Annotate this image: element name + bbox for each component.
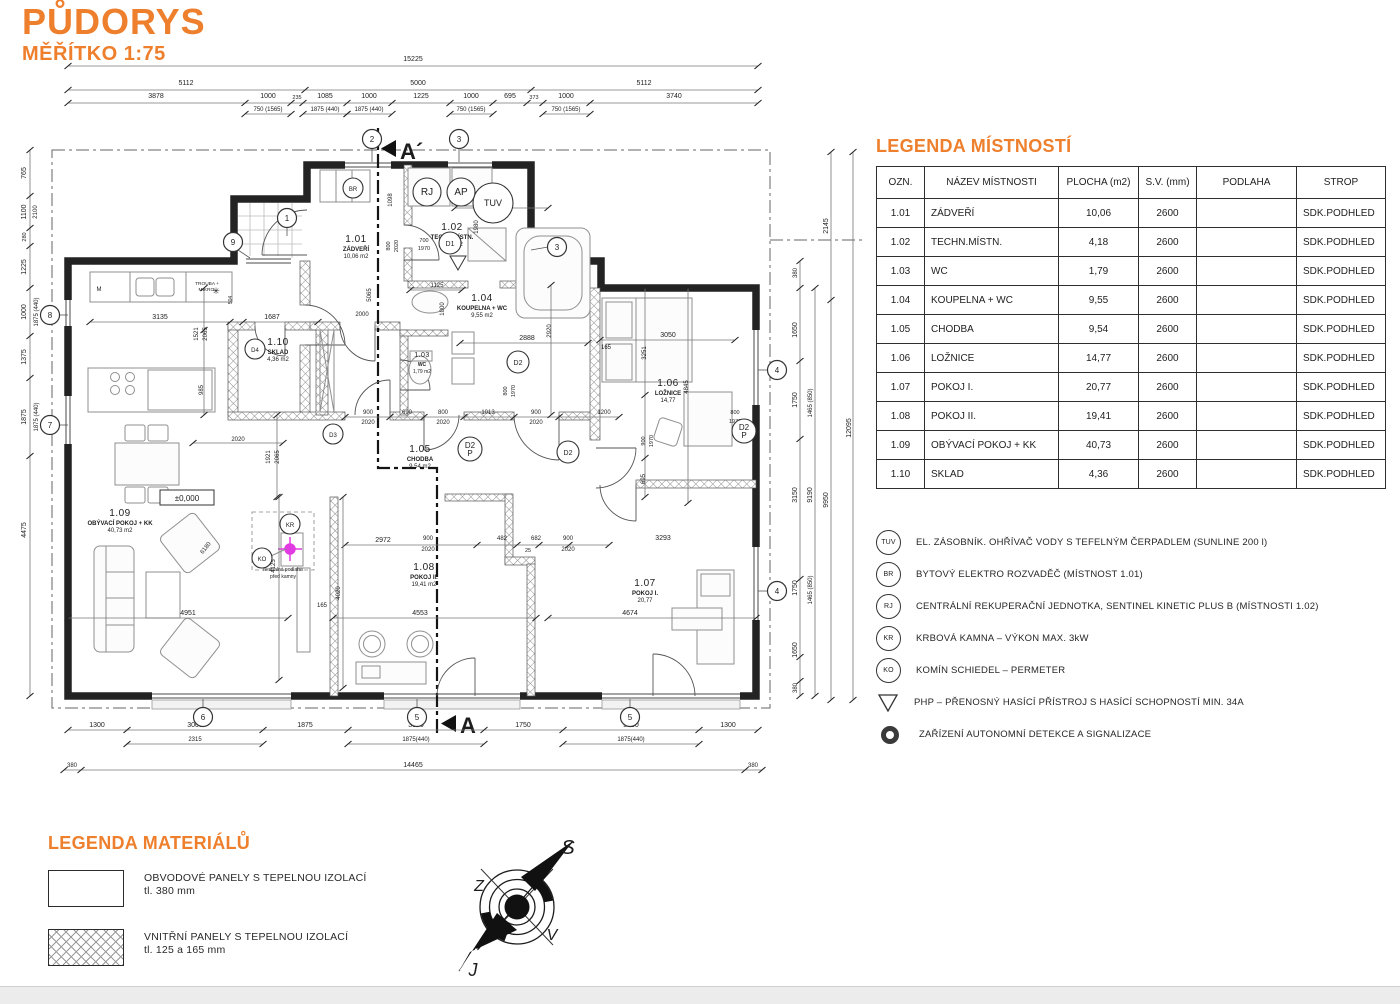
dim-label: 1750	[792, 580, 799, 596]
dim-label: 1970	[511, 385, 517, 397]
dim-label: 695	[641, 473, 647, 484]
dim-label: 1000	[558, 93, 574, 100]
grid-bubble: 5	[621, 708, 640, 727]
dim-label: 800	[730, 410, 739, 416]
table-cell: 1.05	[877, 315, 925, 344]
dim-label: 1465 (850)	[808, 575, 814, 604]
rooms-legend-heading: LEGENDA MÍSTNOSTÍ	[876, 136, 1390, 157]
table-cell: SDK.PODHLED	[1297, 373, 1386, 402]
table-row: 1.01ZÁDVEŘÍ10,062600SDK.PODHLED	[877, 199, 1386, 228]
dim-label: 700	[419, 238, 428, 244]
room-name: OBÝVACÍ POKOJ + KK	[87, 519, 153, 527]
dim-label: 5112	[178, 80, 193, 87]
dim-label: 1000	[21, 304, 28, 320]
section-arrow-bottom	[441, 715, 456, 732]
dim-label: 1375	[21, 349, 28, 365]
dim-label: 4475	[21, 522, 28, 538]
table-row: 1.07POKOJ I.20,772600SDK.PODHLED	[877, 373, 1386, 402]
d1-symbol: D1	[439, 232, 461, 254]
room-name: ZÁDVEŘÍ	[343, 245, 370, 253]
table-cell: 10,06	[1059, 199, 1139, 228]
room-number: 1.05	[409, 444, 430, 455]
col-sv: S.V. (mm)	[1139, 167, 1197, 199]
dim-label: 25	[525, 548, 531, 554]
page-title: PŮDORYS	[22, 2, 206, 42]
d3-symbol: D3	[323, 424, 343, 444]
room-name: KOUPELNA + WC	[457, 306, 508, 312]
material-label: VNITŘNÍ PANELY S TEPELNOU IZOLACÍ	[144, 931, 348, 944]
dim-label: 9950	[823, 492, 830, 508]
dim-label: 1875 (440)	[34, 402, 40, 431]
dim-label: 1000	[361, 93, 377, 100]
table-cell: 1.09	[877, 431, 925, 460]
room-number: 1.03	[414, 352, 430, 359]
grid-bubble-number: 2	[370, 135, 375, 144]
dim-label: 373	[529, 95, 538, 101]
legend-item-text: CENTRÁLNÍ REKUPERAČNÍ JEDNOTKA, SENTINEL…	[916, 601, 1319, 612]
dim-label: 3251	[642, 346, 648, 360]
dim-label: 5112	[636, 80, 651, 87]
legend-item: ZAŘÍZENÍ AUTONOMNÍ DETEKCE A SIGNALIZACE	[876, 723, 1400, 746]
table-cell	[1197, 373, 1297, 402]
room-label: 1.01ZÁDVEŘÍ10,06 m2	[343, 234, 370, 260]
grid-bubble: 3	[450, 130, 469, 149]
dim-label: 900	[363, 410, 374, 416]
device-label: P	[741, 431, 746, 440]
table-cell: SDK.PODHLED	[1297, 344, 1386, 373]
dim-label: 165	[317, 603, 328, 609]
dim-label: 695	[504, 93, 516, 100]
grid-bubble: 4	[768, 582, 787, 601]
room-label: 1.10SKLAD4,36 m2	[267, 337, 289, 363]
table-header-row: OZN. NÁZEV MÍSTNOSTI PLOCHA (m2) S.V. (m…	[877, 167, 1386, 199]
table-cell: 1.08	[877, 402, 925, 431]
legend-item-text: KOMÍN SCHIEDEL – PERMETER	[916, 665, 1065, 676]
compass-rose: S Z V J	[430, 815, 615, 1000]
table-cell: POKOJ II.	[925, 402, 1059, 431]
legend-item: BRBYTOVÝ ELEKTRO ROZVADĚČ (MÍSTNOST 1.01…	[876, 563, 1400, 586]
table-cell: 1.04	[877, 286, 925, 315]
room-number: 1.02	[441, 222, 462, 233]
dim-label: 1875(440)	[402, 737, 429, 743]
dim-label: 12095	[846, 418, 853, 438]
table-cell: 2600	[1139, 402, 1197, 431]
table-cell: 14,77	[1059, 344, 1139, 373]
dim-label: 2100	[33, 205, 39, 219]
dim-label: 4020	[336, 586, 342, 600]
dim-label: 5000	[410, 80, 426, 87]
table-cell: 9,54	[1059, 315, 1139, 344]
table-row: 1.02TECHN.MÍSTN.4,182600SDK.PODHLED	[877, 228, 1386, 257]
room-name: LOŽNICE	[655, 389, 681, 397]
legend-item-text: EL. ZÁSOBNÍK. OHŘÍVAČ VODY S TEFELNÝM ČE…	[916, 537, 1267, 548]
table-cell: SDK.PODHLED	[1297, 286, 1386, 315]
table-cell: SKLAD	[925, 460, 1059, 489]
dim-label: 1875(440)	[617, 737, 644, 743]
dim-label: 2065	[275, 450, 281, 464]
dim-label: 2888	[519, 335, 535, 342]
dim-label: 2972	[375, 537, 391, 544]
table-cell: SDK.PODHLED	[1297, 431, 1386, 460]
device-label: BR	[349, 187, 358, 193]
device-label: KO	[258, 557, 267, 563]
dim-label: 2020	[436, 420, 450, 426]
dim-label: 900	[641, 436, 647, 445]
table-cell: 1.03	[877, 257, 925, 286]
device-label: D3	[329, 433, 337, 439]
col-plocha: PLOCHA (m2)	[1059, 167, 1139, 199]
compass-north-label: S	[561, 837, 575, 859]
tuv-symbol: TUV	[473, 183, 513, 223]
dim-label: 3135	[152, 314, 168, 321]
dim-label: 800	[438, 410, 449, 416]
dim-label: 1970	[649, 435, 655, 447]
dim-label: 1921	[266, 450, 272, 464]
table-row: 1.09OBÝVACÍ POKOJ + KK40,732600SDK.PODHL…	[877, 431, 1386, 460]
dim-label: 14465	[403, 762, 423, 769]
dim-label: nespalná podlaha	[263, 567, 303, 573]
legend-item-text: BYTOVÝ ELEKTRO ROZVADĚČ (MÍSTNOST 1.01)	[916, 569, 1143, 580]
dim-label: 3050	[660, 332, 676, 339]
dim-label: 2020	[361, 420, 375, 426]
table-cell: 1.10	[877, 460, 925, 489]
room-name: POKOJ II.	[410, 575, 438, 581]
dim-label: 165	[601, 345, 612, 351]
dim-label: 900	[563, 536, 574, 542]
device-label: TUV	[484, 198, 502, 208]
floor-plan: A´ A	[0, 40, 880, 810]
dim-label: 280	[22, 232, 28, 241]
room-number: 1.07	[634, 578, 655, 589]
table-cell: 2600	[1139, 228, 1197, 257]
table-cell: 4,36	[1059, 460, 1139, 489]
dim-label: 1000	[260, 93, 276, 100]
table-cell: 2600	[1139, 431, 1197, 460]
device-label: P	[467, 449, 472, 458]
dim-label: 765	[21, 167, 28, 179]
ko-circle-icon: KO	[876, 658, 901, 683]
triangle-icon	[876, 691, 899, 714]
dim-label: 1300	[89, 722, 105, 729]
device-label: D1	[446, 241, 455, 248]
table-cell	[1197, 315, 1297, 344]
table-row: 1.03WC1,792600SDK.PODHLED	[877, 257, 1386, 286]
table-cell: SDK.PODHLED	[1297, 228, 1386, 257]
dim-label: 3740	[666, 93, 682, 100]
legend-item: KRKRBOVÁ KAMNA – VÝKON MAX. 3kW	[876, 627, 1400, 650]
dim-label: 1098	[388, 193, 394, 207]
table-cell: LOŽNICE	[925, 344, 1059, 373]
dim-label: 2000	[355, 312, 369, 318]
grid-bubble: 6	[194, 708, 213, 727]
table-cell: 2600	[1139, 373, 1197, 402]
dim-label: 4674	[622, 610, 638, 617]
ap-symbol: AP	[447, 178, 475, 206]
dim-label: 1465 (850)	[808, 388, 814, 417]
dim-label: 2020	[394, 240, 400, 252]
symbols-legend-list: TUVEL. ZÁSOBNÍK. OHŘÍVAČ VODY S TEFELNÝM…	[876, 531, 1400, 746]
section-label-top: A´	[400, 139, 423, 164]
dim-label: 1875	[297, 722, 313, 729]
rooms-table-body: 1.01ZÁDVEŘÍ10,062600SDK.PODHLED1.02TECHN…	[877, 199, 1386, 489]
table-row: 1.10SKLAD4,362600SDK.PODHLED	[877, 460, 1386, 489]
dim-label: 2020	[231, 437, 245, 443]
grid-bubble-number: 1	[285, 214, 290, 223]
table-cell: 2600	[1139, 460, 1197, 489]
table-cell	[1197, 228, 1297, 257]
grid-bubble-number: 4	[775, 587, 780, 596]
dim-label: 1200	[597, 410, 611, 416]
dim-label: 380	[748, 763, 759, 769]
table-row: 1.05CHODBA9,542600SDK.PODHLED	[877, 315, 1386, 344]
dim-label: 985	[199, 384, 205, 395]
legend-item: RJCENTRÁLNÍ REKUPERAČNÍ JEDNOTKA, SENTIN…	[876, 595, 1400, 618]
table-cell: 4,18	[1059, 228, 1139, 257]
grid-bubble-number: 6	[201, 713, 206, 722]
section-label-bottom: A	[460, 713, 476, 738]
tuv-circle-icon: TUV	[876, 530, 901, 555]
table-cell: POKOJ I.	[925, 373, 1059, 402]
dim-label: 690	[402, 410, 413, 416]
window-bottom-edge	[0, 986, 1400, 1004]
d2-symbol: D2	[507, 351, 529, 373]
dim-label: 235	[292, 95, 301, 101]
dim-label: 1100	[21, 204, 28, 219]
device-label: KR	[286, 523, 295, 529]
dim-label: 380	[793, 267, 799, 278]
dim-label: 504	[228, 296, 234, 305]
table-cell	[1197, 402, 1297, 431]
table-cell	[1197, 431, 1297, 460]
rj-circle-icon: RJ	[876, 594, 901, 619]
table-row: 1.06LOŽNICE14,772600SDK.PODHLED	[877, 344, 1386, 373]
table-cell: CHODBA	[925, 315, 1059, 344]
d4-symbol: D4	[245, 339, 265, 359]
grid-bubble: 4	[768, 361, 787, 380]
kr-symbol: KR	[280, 514, 300, 534]
table-cell	[1197, 460, 1297, 489]
dim-label: M	[97, 287, 102, 293]
room-area: 20,77	[637, 598, 653, 604]
room-area: 1,79 m2	[413, 369, 431, 375]
col-podlaha: PODLAHA	[1197, 167, 1297, 199]
dim-label: 1225	[413, 93, 429, 100]
table-cell: SDK.PODHLED	[1297, 460, 1386, 489]
rj-symbol: RJ	[413, 178, 441, 206]
legend-item-text: ZAŘÍZENÍ AUTONOMNÍ DETEKCE A SIGNALIZACE	[919, 729, 1151, 740]
dim-label: 1650	[792, 322, 799, 338]
room-name: WC	[418, 362, 427, 368]
table-row: 1.08POKOJ II.19,412600SDK.PODHLED	[877, 402, 1386, 431]
dim-label: 1125	[431, 283, 445, 289]
room-name: SKLAD	[268, 350, 289, 356]
table-cell: 2600	[1139, 286, 1197, 315]
device-label: RJ	[421, 187, 433, 198]
section-arrow-top	[381, 140, 396, 157]
dim-label: před kamny	[270, 574, 297, 580]
dim-label: 1650	[792, 642, 799, 658]
grid-bubble-number: 9	[231, 238, 236, 247]
table-cell: SDK.PODHLED	[1297, 257, 1386, 286]
dim-label: 1085	[317, 93, 333, 100]
grid-bubble: 9	[224, 233, 243, 252]
d2-symbol: D2	[557, 441, 579, 463]
room-area: 40,73 m2	[107, 528, 133, 534]
d2-p-symbol: D2P	[732, 419, 756, 443]
table-cell: 1,79	[1059, 257, 1139, 286]
dim-label: 4845	[684, 380, 690, 394]
room-area: 19,41 m2	[411, 582, 437, 588]
dim-label: 1225	[21, 259, 28, 275]
dim-label: ±0,000	[175, 494, 200, 503]
legend-item: PHP – PŘENOSNÝ HASÍCÍ PŘÍSTROJ S HASÍCÍ …	[876, 691, 1400, 714]
dim-label: 1687	[264, 314, 280, 321]
room-area: 4,36 m2	[267, 357, 289, 363]
table-cell: OBÝVACÍ POKOJ + KK	[925, 431, 1059, 460]
compass-south-label: J	[468, 960, 479, 980]
compass-east-label: V	[547, 927, 559, 944]
dim-label: 800	[386, 241, 392, 250]
table-cell: 19,41	[1059, 402, 1139, 431]
room-area: 9,55 m2	[471, 313, 493, 319]
dim-label: 900	[423, 536, 434, 542]
room-area: 14,77	[660, 398, 676, 404]
dim-label: 3150	[792, 487, 799, 503]
col-ozn: OZN.	[877, 167, 925, 199]
dim-label: 5065	[367, 288, 373, 302]
table-cell: 2600	[1139, 344, 1197, 373]
dim-label: 1750	[792, 392, 799, 408]
rooms-table: OZN. NÁZEV MÍSTNOSTI PLOCHA (m2) S.V. (m…	[876, 166, 1386, 489]
col-strop: STROP	[1297, 167, 1386, 199]
dim-label: 2020	[561, 547, 575, 553]
table-cell	[1197, 286, 1297, 315]
dim-label: ✳	[212, 286, 220, 296]
dim-label: 2145	[823, 218, 830, 234]
dim-label: 1000	[440, 302, 446, 316]
table-cell: 1.06	[877, 344, 925, 373]
dim-label: 1875 (440)	[310, 107, 339, 113]
dim-label: 750 (1565)	[551, 107, 580, 113]
dim-label: 2315	[188, 737, 202, 743]
grid-bubble: 5	[408, 708, 427, 727]
room-number: 1.08	[413, 562, 434, 573]
compass-hub	[505, 895, 530, 920]
exterior-panel-swatch	[48, 870, 124, 907]
dim-label: 1875	[21, 409, 28, 425]
room-number: 1.10	[267, 337, 288, 348]
grid-bubble: 3	[548, 238, 567, 257]
dim-label: 1300	[720, 722, 736, 729]
grid-bubble-number: 8	[48, 311, 53, 320]
table-cell: 2600	[1139, 199, 1197, 228]
room-area: 10,06 m2	[343, 254, 369, 260]
dim-label: 1000	[463, 93, 479, 100]
table-cell: KOUPELNA + WC	[925, 286, 1059, 315]
room-number: 1.06	[657, 378, 678, 389]
table-cell	[1197, 344, 1297, 373]
rooms-legend: LEGENDA MÍSTNOSTÍ OZN. NÁZEV MÍSTNOSTI P…	[876, 136, 1390, 489]
room-name: POKOJ I.	[632, 591, 658, 597]
table-cell: TECHN.MÍSTN.	[925, 228, 1059, 257]
room-label: 1.05CHODBA9,54 m2	[407, 444, 434, 470]
table-cell: WC	[925, 257, 1059, 286]
dim-label: 3293	[655, 535, 671, 542]
legend-item-text: PHP – PŘENOSNÝ HASÍCÍ PŘÍSTROJ S HASÍCÍ …	[914, 697, 1244, 708]
table-cell: 20,77	[1059, 373, 1139, 402]
dim-label: 750 (1565)	[456, 107, 485, 113]
grid-bubble-number: 3	[555, 243, 560, 252]
dim-label: 750 (1565)	[253, 107, 282, 113]
table-row: 1.04KOUPELNA + WC9,552600SDK.PODHLED	[877, 286, 1386, 315]
table-cell: ZÁDVEŘÍ	[925, 199, 1059, 228]
room-label: 1.08POKOJ II.19,41 m2	[410, 562, 438, 588]
table-cell: 40,73	[1059, 431, 1139, 460]
dim-label: 2020	[421, 547, 435, 553]
dim-label: 1980	[474, 220, 480, 234]
grid-bubble: 2	[363, 130, 382, 149]
terrace-strips	[152, 700, 740, 709]
col-nazev: NÁZEV MÍSTNOSTI	[925, 167, 1059, 199]
kr-circle-icon: KR	[876, 626, 901, 651]
grid-bubble: 1	[278, 209, 297, 228]
symbols-legend: TUVEL. ZÁSOBNÍK. OHŘÍVAČ VODY S TEFELNÝM…	[876, 531, 1400, 746]
grid-bubble-number: 4	[775, 366, 780, 375]
dim-label: 4553	[412, 610, 428, 617]
dim-label: 800	[503, 386, 509, 395]
dim-label: 380	[793, 682, 799, 693]
grid-bubble-number: 5	[628, 713, 633, 722]
device-label: D4	[251, 348, 259, 354]
table-cell: 1.01	[877, 199, 925, 228]
grid-bubble: 8	[41, 306, 60, 325]
dim-label: 1970	[418, 246, 430, 252]
ko-symbol: KO	[252, 548, 272, 568]
room-number: 1.09	[109, 508, 130, 519]
table-cell: SDK.PODHLED	[1297, 199, 1386, 228]
dim-label: 1875 (440)	[34, 297, 40, 326]
legend-item: KOKOMÍN SCHIEDEL – PERMETER	[876, 659, 1400, 682]
dim-label: 2065	[203, 327, 209, 341]
room-number: 1.04	[471, 293, 492, 304]
legend-item: TUVEL. ZÁSOBNÍK. OHŘÍVAČ VODY S TEFELNÝM…	[876, 531, 1400, 554]
table-cell: 1.02	[877, 228, 925, 257]
table-cell: 2600	[1139, 315, 1197, 344]
dim-label: 9190	[807, 487, 814, 503]
room-area: 9,54 m2	[409, 464, 431, 470]
table-cell: 1.07	[877, 373, 925, 402]
dim-label: 15225	[403, 56, 423, 63]
table-cell: 2600	[1139, 257, 1197, 286]
device-label: D2	[564, 450, 573, 457]
table-cell	[1197, 257, 1297, 286]
device-label: D2	[514, 360, 523, 367]
dim-label: 3878	[148, 93, 164, 100]
dim-label: 682	[531, 536, 542, 542]
table-cell	[1197, 199, 1297, 228]
dim-label: 1521	[194, 327, 200, 341]
room-name: CHODBA	[407, 457, 434, 463]
dim-label: 2020	[529, 420, 543, 426]
table-cell: SDK.PODHLED	[1297, 315, 1386, 344]
grid-bubble-number: 7	[48, 421, 53, 430]
compass-west-label: Z	[473, 878, 485, 895]
table-cell: 9,55	[1059, 286, 1139, 315]
dim-label: 900	[531, 410, 542, 416]
legend-item-text: KRBOVÁ KAMNA – VÝKON MAX. 3kW	[916, 633, 1089, 644]
dim-label: 1013	[481, 410, 495, 416]
dim-label: 380	[67, 763, 78, 769]
